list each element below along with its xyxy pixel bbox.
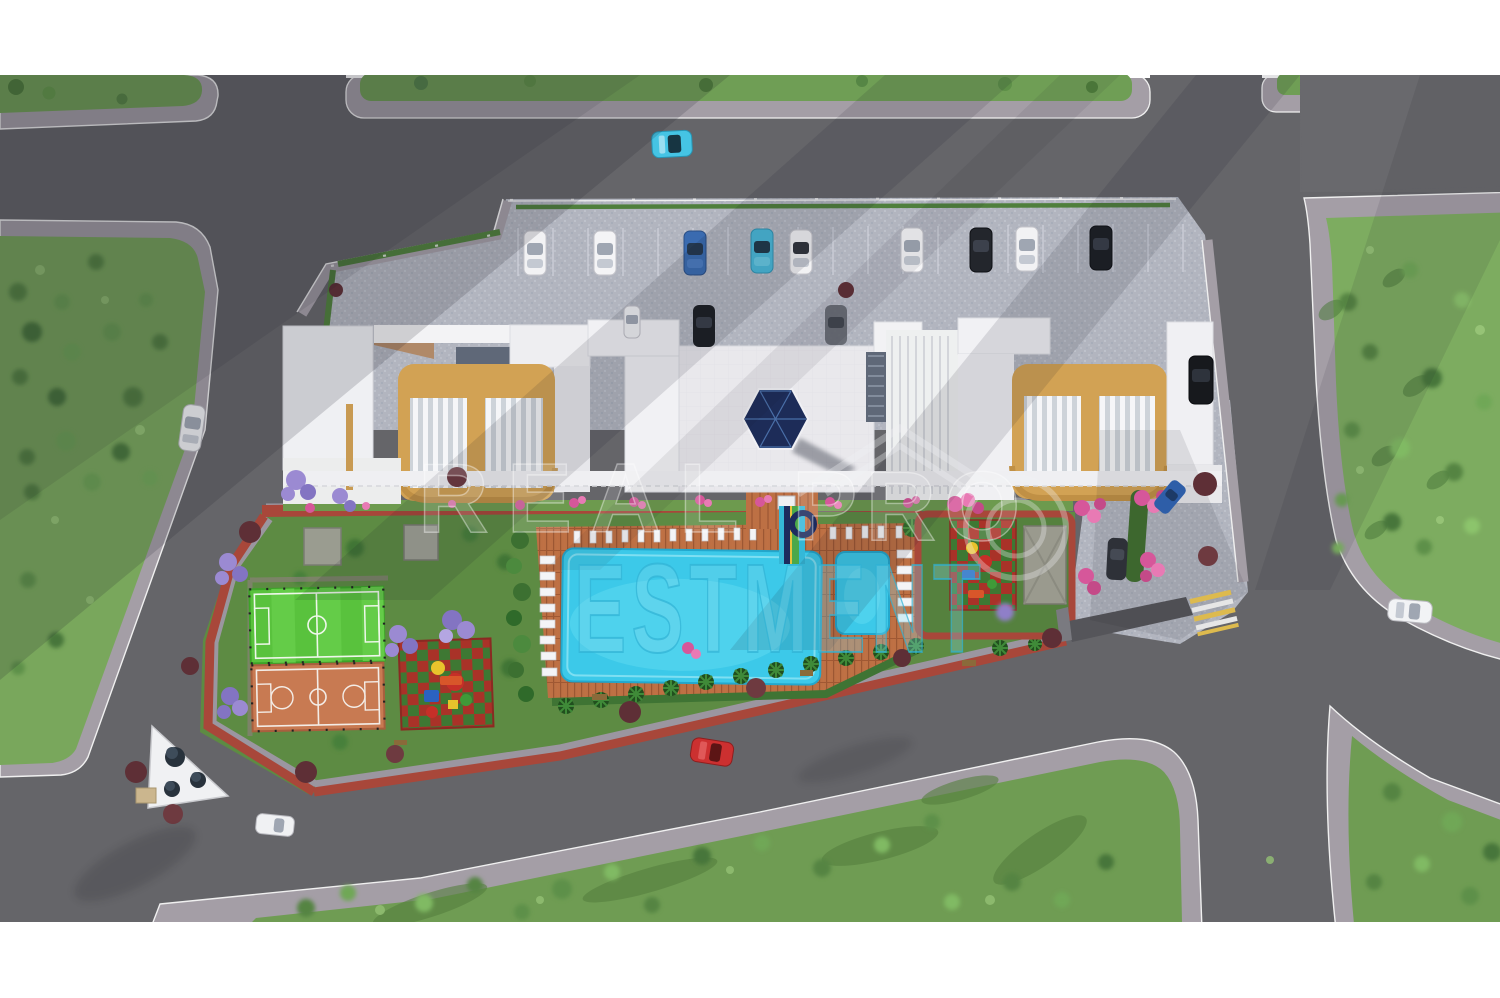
svg-text:REAL: REAL: [418, 443, 757, 553]
svg-text:ESTMENT: ESTMENT: [574, 539, 986, 680]
